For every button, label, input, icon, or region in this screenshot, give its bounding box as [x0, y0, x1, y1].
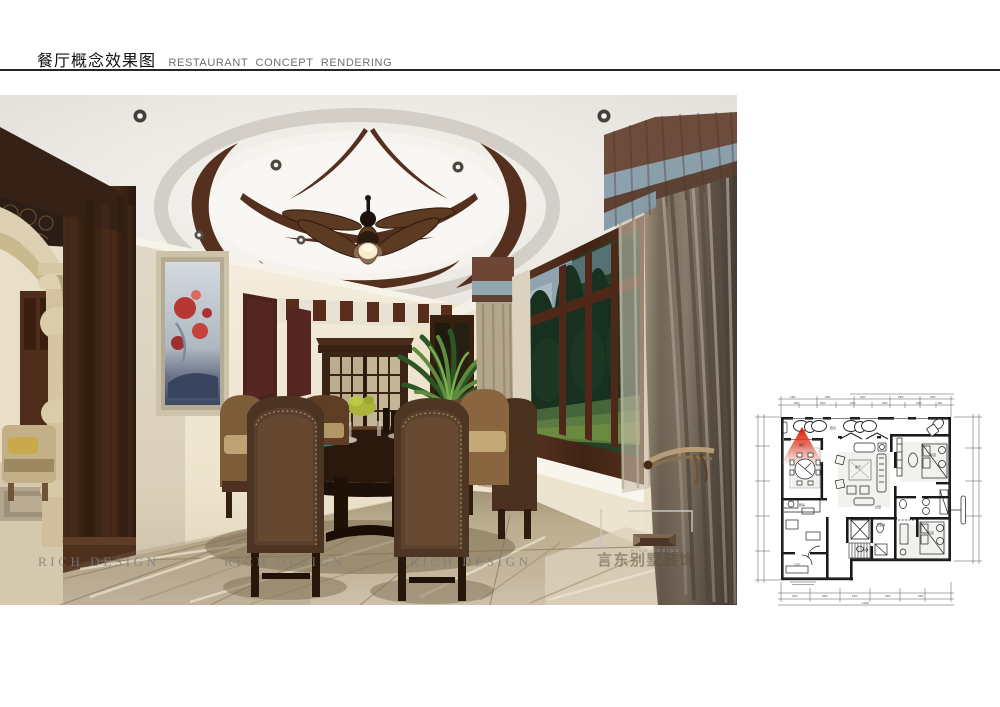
svg-text:RICH DESIGN: RICH DESIGN: [410, 554, 532, 569]
svg-text:RICH DESIGN: RICH DESIGN: [224, 554, 346, 569]
svg-text:厨房: 厨房: [799, 502, 805, 507]
svg-text:卧室: 卧室: [930, 452, 936, 457]
svg-text:1200: 1200: [850, 402, 856, 405]
svg-text:3200: 3200: [860, 396, 866, 399]
svg-text:1500: 1500: [820, 402, 826, 405]
svg-text:RICH DESIGN: RICH DESIGN: [38, 554, 160, 569]
svg-text:2700: 2700: [852, 595, 858, 598]
svg-text:900: 900: [938, 402, 943, 405]
svg-text:2400: 2400: [792, 595, 798, 598]
svg-text:言东别墅装饰: 言东别墅装饰: [597, 551, 696, 569]
svg-text:客厅: 客厅: [855, 464, 861, 469]
svg-text:14400: 14400: [862, 602, 869, 605]
svg-text:卫生间: 卫生间: [876, 522, 885, 527]
svg-text:过道: 过道: [875, 504, 881, 509]
svg-text:2400: 2400: [898, 396, 904, 399]
svg-text:900: 900: [794, 402, 799, 405]
svg-text:1500: 1500: [885, 595, 891, 598]
svg-text:1500: 1500: [822, 595, 828, 598]
svg-text:2400: 2400: [825, 396, 831, 399]
svg-text:门厅: 门厅: [794, 562, 800, 567]
svg-text:2150: 2150: [930, 396, 936, 399]
svg-text:2400: 2400: [918, 595, 924, 598]
svg-text:餐厅: 餐厅: [799, 442, 805, 447]
svg-text:卧室: 卧室: [928, 530, 934, 535]
svg-text:2150: 2150: [790, 396, 796, 399]
svg-text:阳台: 阳台: [830, 425, 836, 430]
svg-text:1500: 1500: [882, 402, 888, 405]
svg-text:1200: 1200: [916, 402, 922, 405]
